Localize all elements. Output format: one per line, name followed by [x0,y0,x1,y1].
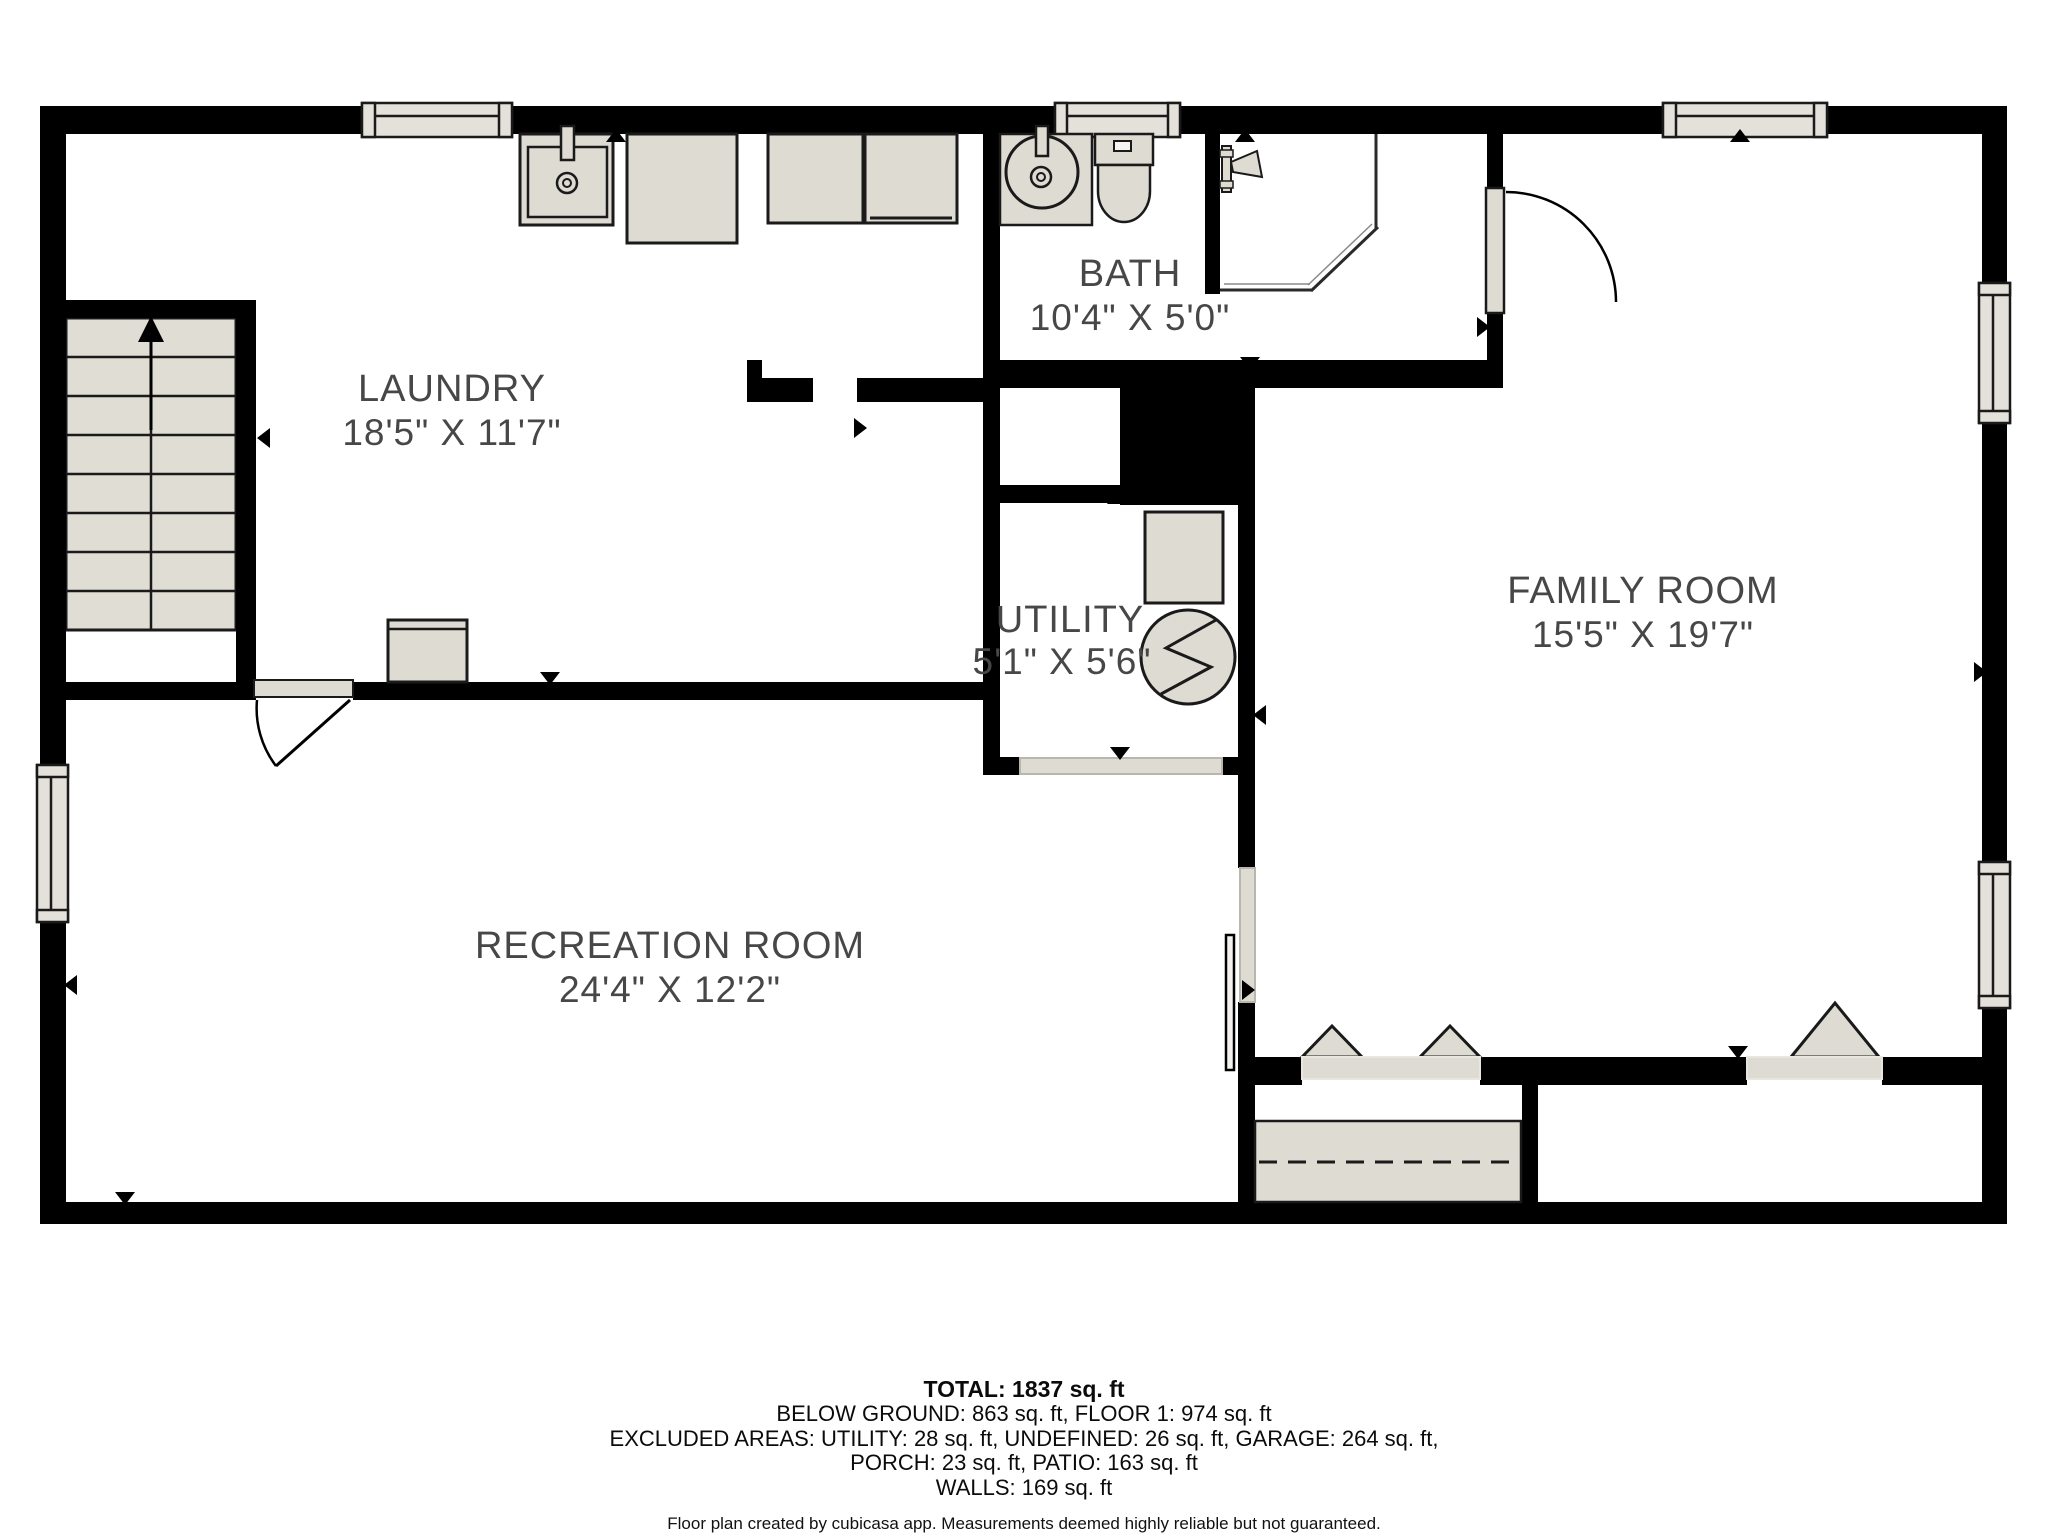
area-line-excluded: EXCLUDED AREAS: UTILITY: 28 sq. ft, UNDE… [0,1427,2048,1452]
area-line-floors: BELOW GROUND: 863 sq. ft, FLOOR 1: 974 s… [0,1402,2048,1427]
cabinet-icon [865,134,957,223]
room-dims-family: 15'5" X 19'7" [1532,614,1754,655]
room-label-family: FAMILY ROOM [1507,570,1778,612]
stairs [66,316,236,630]
area-line-walls: WALLS: 169 sq. ft [0,1476,2048,1501]
floor-plan: LAUNDRY 18'5" X 11'7" BATH 10'4" X 5'0" … [0,0,2048,1536]
washer-icon [627,134,737,243]
toilet-icon [1095,134,1153,222]
area-summary: TOTAL: 1837 sq. ft BELOW GROUND: 863 sq.… [0,1376,2048,1534]
room-label-laundry: LAUNDRY [358,368,546,410]
window-bath-top-icon [1055,103,1180,137]
room-label-bath: BATH [1079,253,1182,295]
disclaimer-text: Floor plan created by cubicasa app. Meas… [0,1514,2048,1534]
laundry-sink-icon [520,126,613,225]
window-family-top-icon [1663,103,1827,137]
window-family-right-icon [1979,283,2010,423]
room-dims-laundry: 18'5" X 11'7" [342,412,561,453]
bath-sink-icon [1000,126,1092,225]
room-label-utility: UTILITY [996,599,1144,641]
sliding-door-utility-icon [1020,758,1222,774]
window-family-right-lower-icon [1979,862,2010,1008]
room-dims-utility: 5'1" X 5'6" [973,641,1152,682]
water-heater-icon [1145,512,1223,603]
patio-steps [1255,1121,1521,1202]
window-laundry-top-icon [362,103,512,137]
room-dims-recreation: 24'4" X 12'2" [559,969,781,1010]
total-area: TOTAL: 1837 sq. ft [0,1376,2048,1402]
floor-plan-page: LAUNDRY 18'5" X 11'7" BATH 10'4" X 5'0" … [0,0,2048,1536]
dryer-icon [768,134,863,223]
window-recreation-left-icon [37,765,68,922]
area-line-porch-patio: PORCH: 23 sq. ft, PATIO: 163 sq. ft [0,1451,2048,1476]
furnace-icon [1141,610,1235,704]
room-label-recreation: RECREATION ROOM [475,925,865,967]
room-dims-bath: 10'4" X 5'0" [1030,297,1231,338]
freezer-icon [388,620,467,682]
